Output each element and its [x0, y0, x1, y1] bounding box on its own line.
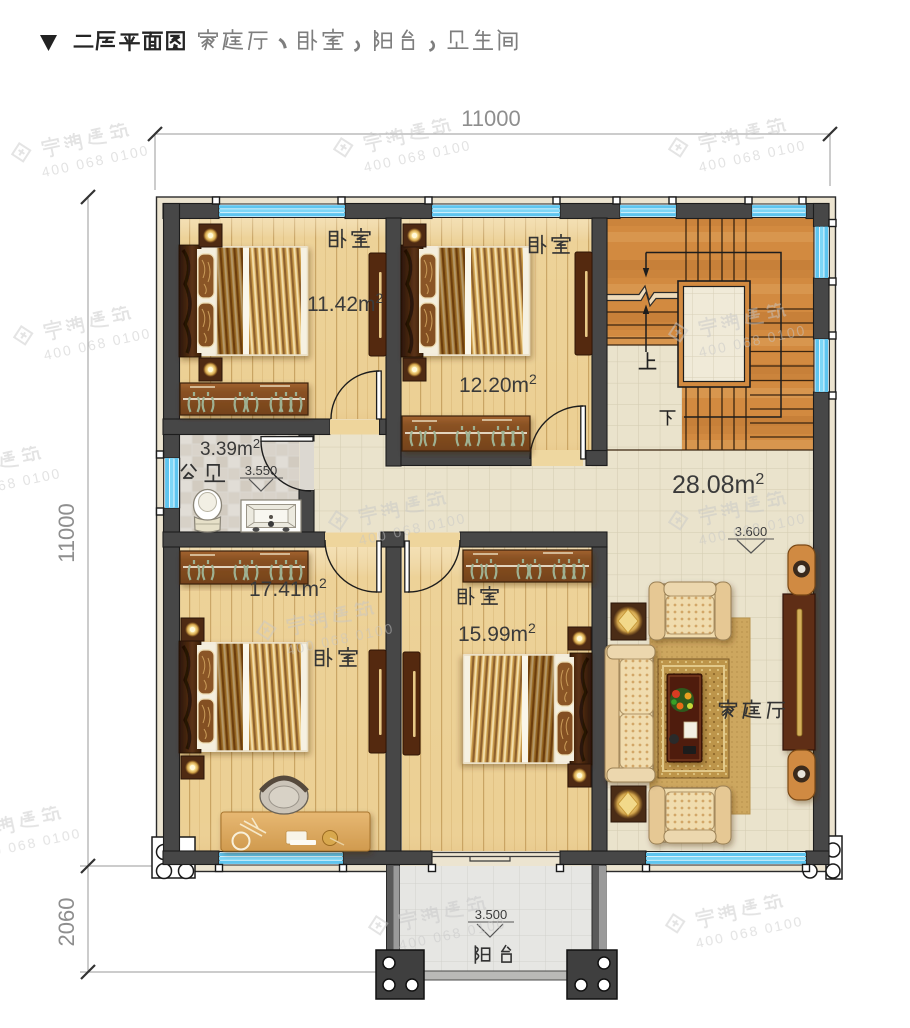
svg-text:17.41m2: 17.41m2	[249, 575, 327, 601]
svg-text:3.39m2: 3.39m2	[200, 436, 260, 460]
svg-text:2060: 2060	[54, 898, 79, 947]
svg-text:3.550: 3.550	[245, 463, 278, 478]
svg-text:28.08m2: 28.08m2	[672, 471, 764, 499]
svg-text:11000: 11000	[54, 503, 79, 563]
svg-text:15.99m2: 15.99m2	[458, 620, 536, 646]
svg-text:12.20m2: 12.20m2	[459, 371, 537, 397]
svg-text:11000: 11000	[461, 106, 521, 131]
svg-text:11.42m2: 11.42m2	[307, 290, 384, 316]
